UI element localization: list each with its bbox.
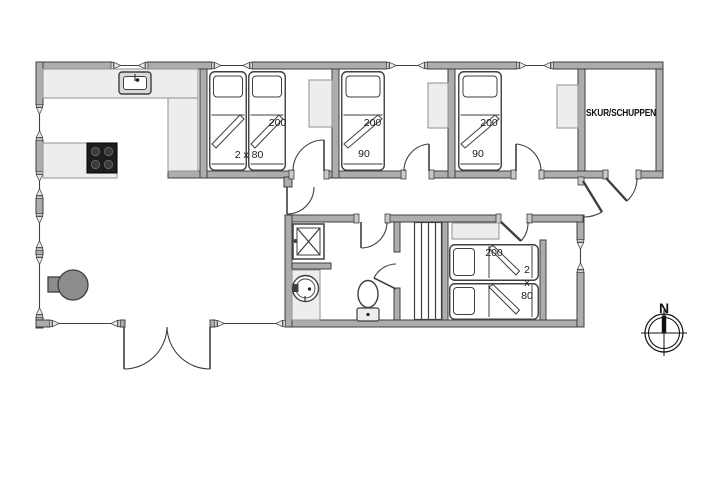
cooktop [87,143,117,173]
wood-stove [48,270,88,300]
bed-length-label: 200 [480,117,498,129]
compass-icon: N [641,300,687,356]
living-room [48,270,88,300]
floorplan-drawing: 200 2 x 80 200 90 200 90 [0,0,718,479]
wardrobe [309,80,332,127]
bedroom-4: 200 2 x 80 [450,223,539,319]
bed-length-label: 200 [485,247,503,259]
bed-length-label: 200 [364,117,382,129]
toilet [357,281,379,322]
washbasin [293,276,319,302]
bedroom-1: 200 2 x 80 [210,72,332,171]
kitchen-counter-side [168,98,198,171]
bed-width-label: 90 [358,148,370,160]
wardrobe [557,85,578,128]
bed-length-label: 200 [269,117,287,129]
bed-width-label-2: x [524,277,530,289]
bedroom3-door [516,144,541,171]
floorplan-canvas: 200 2 x 80 200 90 200 90 [0,0,718,479]
kitchen [43,69,198,178]
wardrobe [452,223,499,239]
compass-north-label: N [659,300,669,316]
bedroom2-door [404,144,429,171]
built-in-closet [415,223,442,320]
bathroom-door [361,222,387,248]
bed-width-label-3: 80 [521,290,533,302]
bedroom-3: 200 90 [459,72,578,171]
shed-label: SKUR/SCHUPPEN [586,108,656,119]
bed-width-label: 2 x 80 [235,149,264,161]
bed-width-label: 90 [472,148,484,160]
hallway-door [287,187,314,214]
shed: SKUR/SCHUPPEN [586,108,656,119]
bathroom [292,224,379,321]
bedroom4-door [501,222,528,241]
wardrobe [428,83,448,128]
kitchen-sink [119,72,151,94]
shed-door [606,178,637,201]
wc-closet-door [374,264,396,289]
bed-width-label-1: 2 [524,264,530,276]
bedroom1-door [293,140,324,171]
east-exterior-door [583,181,602,217]
shower [293,224,324,259]
french-doors [124,327,210,369]
bedroom-2: 200 90 [342,72,448,171]
